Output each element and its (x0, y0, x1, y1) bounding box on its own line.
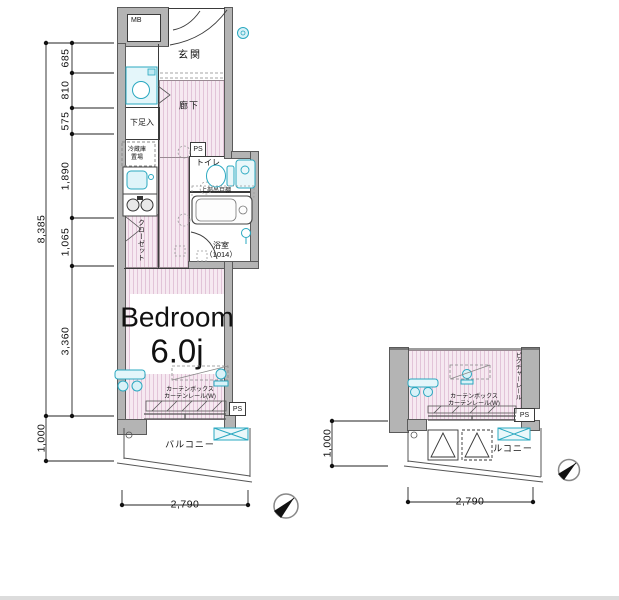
dim-1890: 1,890 (60, 160, 71, 193)
closet-label: クローゼット (137, 219, 144, 267)
bathroom-label-1: 浴室 (213, 242, 229, 250)
curtain-rail-label: カーテンレール(W) (164, 394, 216, 400)
compass-icon-small (558, 460, 580, 481)
hatch-right-label-2: （7F） (469, 452, 485, 458)
dimension-lines-small (332, 421, 533, 502)
washer-area-label-1: 洗濯機 (133, 79, 151, 85)
small-wall-stub-left (408, 420, 426, 430)
compass-icon-main (274, 494, 298, 518)
meter-box-label: MB (131, 17, 142, 24)
stove-icon (123, 194, 157, 216)
small-ps-label: PS (520, 412, 529, 419)
toilet-label: トイレ (196, 159, 220, 167)
upper-cabinet-label: 上部吊戸棚 (201, 188, 231, 194)
dim-810: 810 (60, 78, 71, 101)
curtain-box-label: カーテンボックス (166, 387, 214, 393)
wall-left (118, 44, 125, 434)
balcony-label: バルコニー (165, 440, 215, 449)
washing-machine-icon (126, 67, 157, 104)
dim-685: 685 (60, 46, 71, 69)
picture-rail-label: ピクチャーレール (514, 352, 520, 398)
small-wall-right (522, 348, 539, 408)
genkan-label: 玄関 (178, 51, 202, 62)
wall-bottom-right-stub (225, 416, 235, 432)
ps-lower-label: PS (233, 406, 242, 413)
dim-1000-main: 1,000 (36, 422, 47, 455)
pipe-space-upper: PS (190, 142, 206, 157)
wall-right-upper (225, 8, 232, 158)
shoe-box-label: 下足入 (130, 119, 154, 127)
bedroom-name-label: Bedroom (120, 302, 234, 331)
pipe-space-lower: PS (229, 402, 246, 416)
small-wall-left (390, 348, 408, 432)
kitchen-sink-icon (123, 167, 157, 194)
dim-3360: 3,360 (60, 325, 71, 358)
dim-1065: 1,065 (60, 226, 71, 259)
wall-bump-right (251, 152, 258, 268)
dimension-dots-small (330, 419, 535, 504)
dim-8385: 8,385 (36, 213, 47, 246)
floor-plan-page: MB PS PS 玄関 廊下 下足入 洗濯機 置場 冷蔵庫 置場 トイレ 上部吊… (0, 0, 619, 600)
corridor-floor (159, 158, 189, 268)
fridge-area-label-1: 冷蔵庫 (128, 147, 146, 153)
bathroom-label-2: （1014） (205, 251, 237, 259)
dim-2790-main: 2,790 (168, 499, 203, 510)
bedroom-size-label: 6.0j (150, 335, 203, 370)
small-curtain-box-label: カーテンボックス (450, 394, 498, 400)
plan-lineart (0, 0, 619, 600)
small-wall-right-lower (522, 421, 539, 430)
dim-1000-small: 1,000 (322, 427, 333, 460)
washer-area-label-2: 置場 (136, 87, 148, 93)
small-pipe-space: PS (514, 408, 535, 422)
small-balcony-label: バルコニー (483, 444, 533, 453)
wall-right-lower (225, 262, 232, 422)
doorbell-icon (238, 28, 249, 39)
balcony-outline (117, 428, 252, 482)
small-curtain-rail-label: カーテンレール(W) (448, 401, 500, 407)
genkan-floor (159, 8, 226, 80)
hallway-label: 廊下 (179, 101, 199, 110)
dim-2790-small: 2,790 (453, 496, 488, 507)
small-bedroom-floor (408, 350, 522, 420)
wall-bump-bottom (189, 262, 258, 268)
dim-575: 575 (60, 109, 71, 132)
fridge-area-label-2: 置場 (131, 155, 143, 161)
wall-bottom-left-stub (118, 420, 146, 434)
page-bottom-divider (0, 596, 619, 600)
ps-upper-label: PS (193, 146, 202, 153)
hatch-left-label-2: （2・4・6F） (427, 452, 458, 458)
